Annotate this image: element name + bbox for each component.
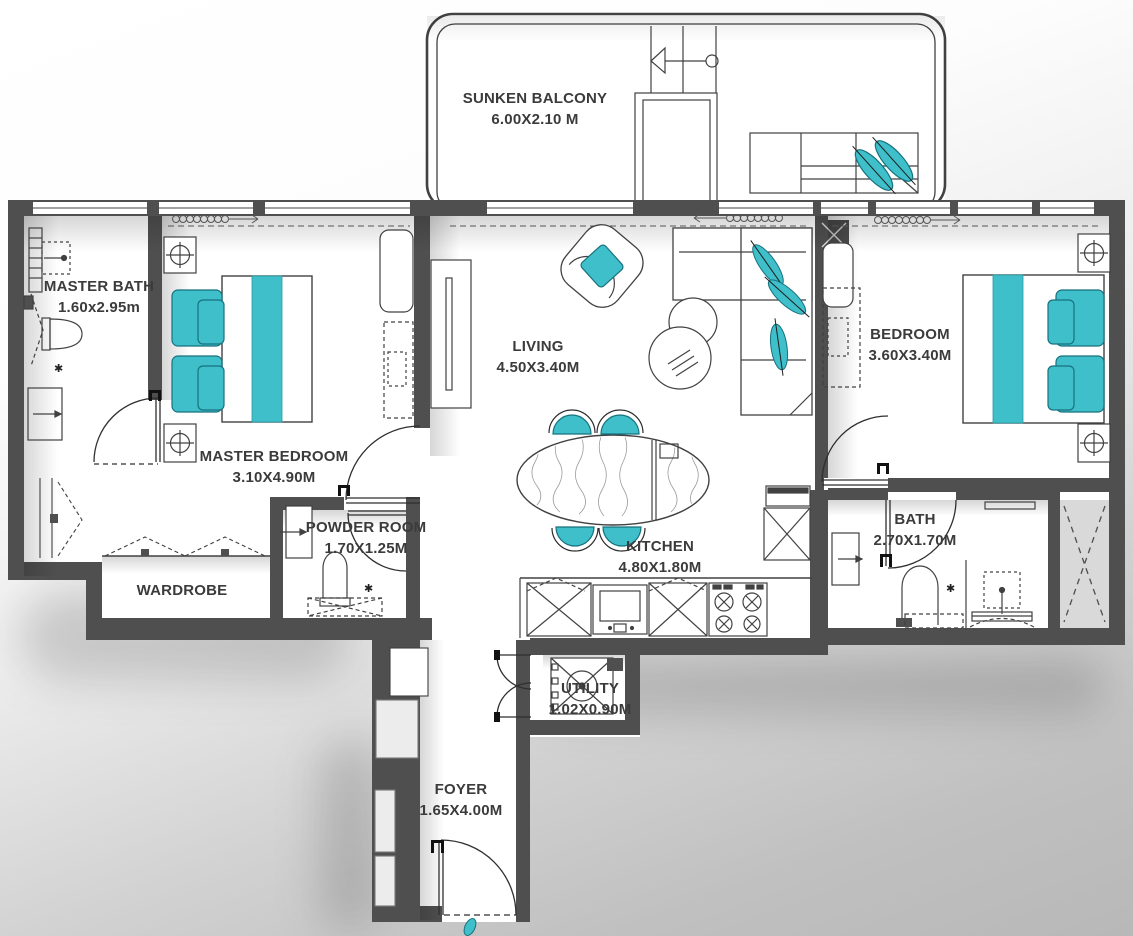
stove-icon — [709, 583, 767, 636]
shaft — [1060, 500, 1109, 628]
dining-table-icon — [517, 434, 709, 525]
room-label-bath: BATH 2.70X1.70M — [874, 509, 957, 551]
room-dims: 1.60x2.95m — [44, 297, 154, 318]
room-label-master-bedroom: MASTER BEDROOM 3.10X4.90M — [200, 446, 349, 488]
room-label-powder-room: POWDER ROOM 1.70X1.25M — [306, 517, 427, 559]
room-label-wardrobe: WARDROBE — [137, 580, 228, 601]
room-label-bedroom: BEDROOM 3.60X3.40M — [869, 324, 952, 366]
room-dims: 4.80X1.80M — [619, 557, 702, 578]
room-name: MASTER BEDROOM — [200, 446, 349, 467]
bed-icon — [963, 275, 1104, 423]
room-label-master-bath: MASTER BATH 1.60x2.95m — [44, 276, 154, 318]
room-label-utility: UTILITY 1.02X0.90M — [549, 678, 632, 720]
room-label-sunken-balcony: SUNKEN BALCONY 6.00X2.10 M — [463, 88, 607, 130]
room-name: UTILITY — [549, 678, 632, 699]
room-dims: 1.70X1.25M — [306, 538, 427, 559]
room-dims: 1.02X0.90M — [549, 699, 632, 720]
tv-unit-icon — [431, 260, 471, 408]
room-name: POWDER ROOM — [306, 517, 427, 538]
sink-vanity-icon — [832, 533, 862, 585]
room-name: WARDROBE — [137, 580, 228, 601]
room-dims: 1.65X4.00M — [420, 800, 503, 821]
room-label-kitchen: KITCHEN 4.80X1.80M — [619, 536, 702, 578]
drain-icon: ✱ — [54, 363, 63, 375]
room-dims: 4.50X3.40M — [497, 357, 580, 378]
room-name: FOYER — [420, 779, 503, 800]
room-dims: 3.10X4.90M — [200, 467, 349, 488]
floor-plan-drawing: ✱ — [0, 0, 1133, 936]
floor-plan: ✱ — [0, 0, 1133, 936]
room-dims: 2.70X1.70M — [874, 530, 957, 551]
room-name: LIVING — [497, 336, 580, 357]
room-dims: 3.60X3.40M — [869, 345, 952, 366]
room-label-living: LIVING 4.50X3.40M — [497, 336, 580, 378]
room-name: BATH — [874, 509, 957, 530]
sink-icon — [593, 585, 647, 634]
room-name: KITCHEN — [619, 536, 702, 557]
drain-icon: ✱ — [364, 583, 373, 595]
nightstand-icon — [164, 237, 196, 273]
room-name: BEDROOM — [869, 324, 952, 345]
drain-icon: ✱ — [946, 583, 955, 595]
room-name: MASTER BATH — [44, 276, 154, 297]
fridge-icon — [764, 486, 810, 560]
windows — [33, 202, 1094, 214]
dresser-icon — [823, 243, 853, 307]
room-label-foyer: FOYER 1.65X4.00M — [420, 779, 503, 821]
room-name: SUNKEN BALCONY — [463, 88, 607, 109]
dresser-icon — [380, 230, 413, 312]
nightstand-icon — [164, 424, 196, 462]
room-dims: 6.00X2.10 M — [463, 109, 607, 130]
nightstand-icon — [1078, 234, 1110, 272]
nightstand-icon — [1078, 424, 1110, 462]
